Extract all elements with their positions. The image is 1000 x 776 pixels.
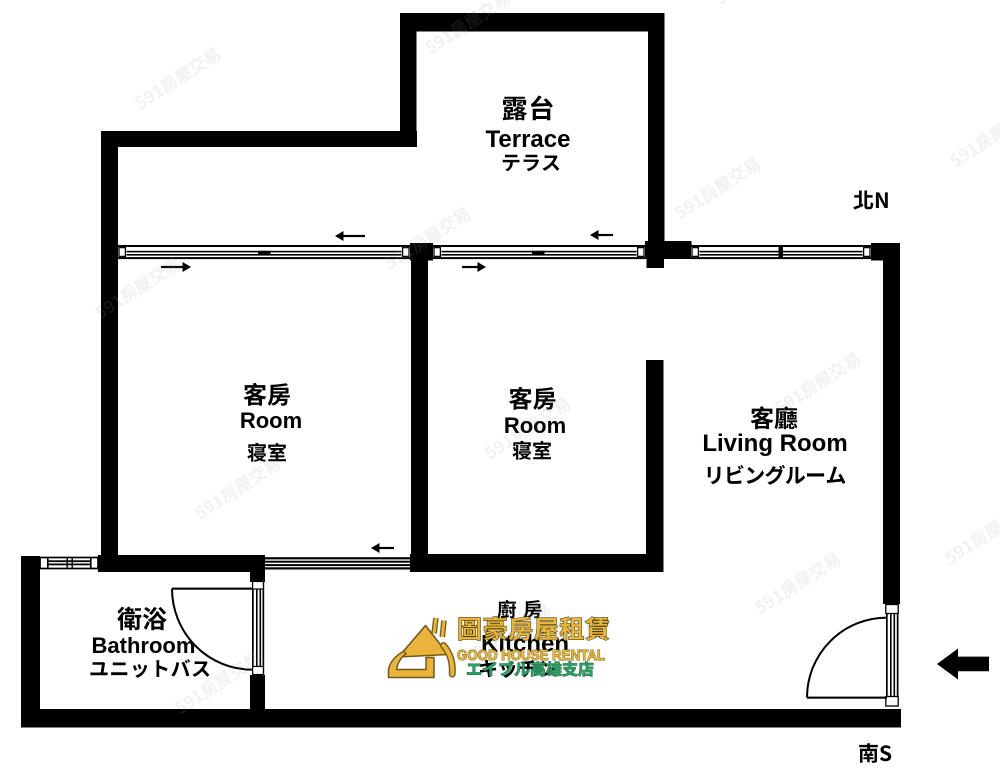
svg-text:Room: Room (240, 408, 302, 433)
svg-text:Terrace: Terrace (486, 126, 571, 153)
svg-text:Living Room: Living Room (702, 430, 847, 457)
svg-text:Bathroom: Bathroom (92, 633, 196, 658)
svg-text:GOOD HOUSE RENTAL: GOOD HOUSE RENTAL (457, 648, 605, 664)
